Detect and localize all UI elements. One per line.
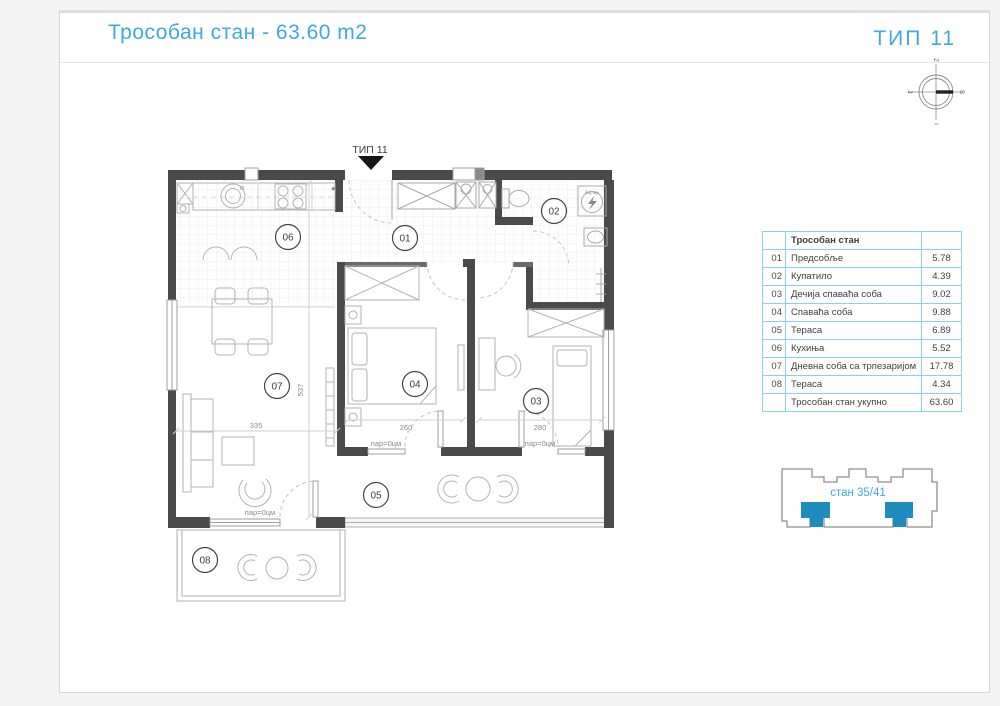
compass-icon: Z S I J xyxy=(906,58,965,125)
unit-label: стан 35/41 xyxy=(830,487,886,499)
hall-closets xyxy=(398,182,496,209)
table-row: 04 Спаваћа соба 9.88 xyxy=(763,303,961,321)
table-total-row: Трособан стан укупно 63.60 xyxy=(763,393,961,411)
room-circle-02: 02 xyxy=(542,199,567,224)
svg-text:05: 05 xyxy=(370,491,382,502)
table-row: 07 Дневна соба са трпезаријом 17.78 xyxy=(763,357,961,375)
svg-text:I: I xyxy=(932,123,939,125)
room-circle-07: 07 xyxy=(265,374,290,399)
table-row: 03 Дечија спаваћа соба 9.02 xyxy=(763,285,961,303)
entrance-marker: ТИП 11 xyxy=(352,144,387,170)
bedroom-furniture xyxy=(345,266,464,426)
room-circle-06: 06 xyxy=(276,225,301,250)
table-header-row: Трособан стан xyxy=(763,232,961,249)
table-row: 01 Предсобље 5.78 xyxy=(763,249,961,267)
building-keyplan: стан 35/41 xyxy=(782,469,937,527)
table-row: 05 Тераса 6.89 xyxy=(763,321,961,339)
room-circle-01: 01 xyxy=(393,226,418,251)
dim-335: 335 xyxy=(250,421,263,430)
area-table: Трособан стан 01 Предсобље 5.78 02 Купат… xyxy=(762,231,962,412)
terrace-railings xyxy=(177,518,612,601)
svg-text:08: 08 xyxy=(199,556,211,567)
table-header: Трособан стан xyxy=(785,232,921,249)
svg-text:J: J xyxy=(906,90,913,93)
svg-text:06: 06 xyxy=(282,233,294,244)
parapet-label-3: пар=0цм xyxy=(245,508,275,517)
table-row: 06 Кухиња 5.52 xyxy=(763,339,961,357)
room-circle-04: 04 xyxy=(403,372,428,397)
counter-star: * xyxy=(331,185,336,197)
dim-537: 537 xyxy=(296,384,305,397)
svg-text:03: 03 xyxy=(530,397,542,408)
entrance-type-label: ТИП 11 xyxy=(352,144,387,156)
svg-text:07: 07 xyxy=(271,382,283,393)
dim-280: 280 xyxy=(534,423,547,432)
room-circle-03: 03 xyxy=(524,389,549,414)
svg-text:01: 01 xyxy=(399,234,411,245)
svg-text:02: 02 xyxy=(548,207,560,218)
table-row: 08 Тераса 4.34 xyxy=(763,375,961,393)
boiler-label: бојлер xyxy=(585,190,599,195)
room-circle-05: 05 xyxy=(364,483,389,508)
dim-260: 260 xyxy=(400,423,413,432)
svg-text:S: S xyxy=(958,90,965,95)
svg-text:04: 04 xyxy=(409,380,421,391)
parapet-label-2: пар=0цм xyxy=(525,439,555,448)
svg-text:Z: Z xyxy=(932,58,939,62)
parapet-label-1: пар=0цм xyxy=(371,439,401,448)
room-circle-08: 08 xyxy=(193,548,218,573)
entrance-arrow-icon xyxy=(358,156,384,170)
table-row: 02 Купатило 4.39 xyxy=(763,267,961,285)
